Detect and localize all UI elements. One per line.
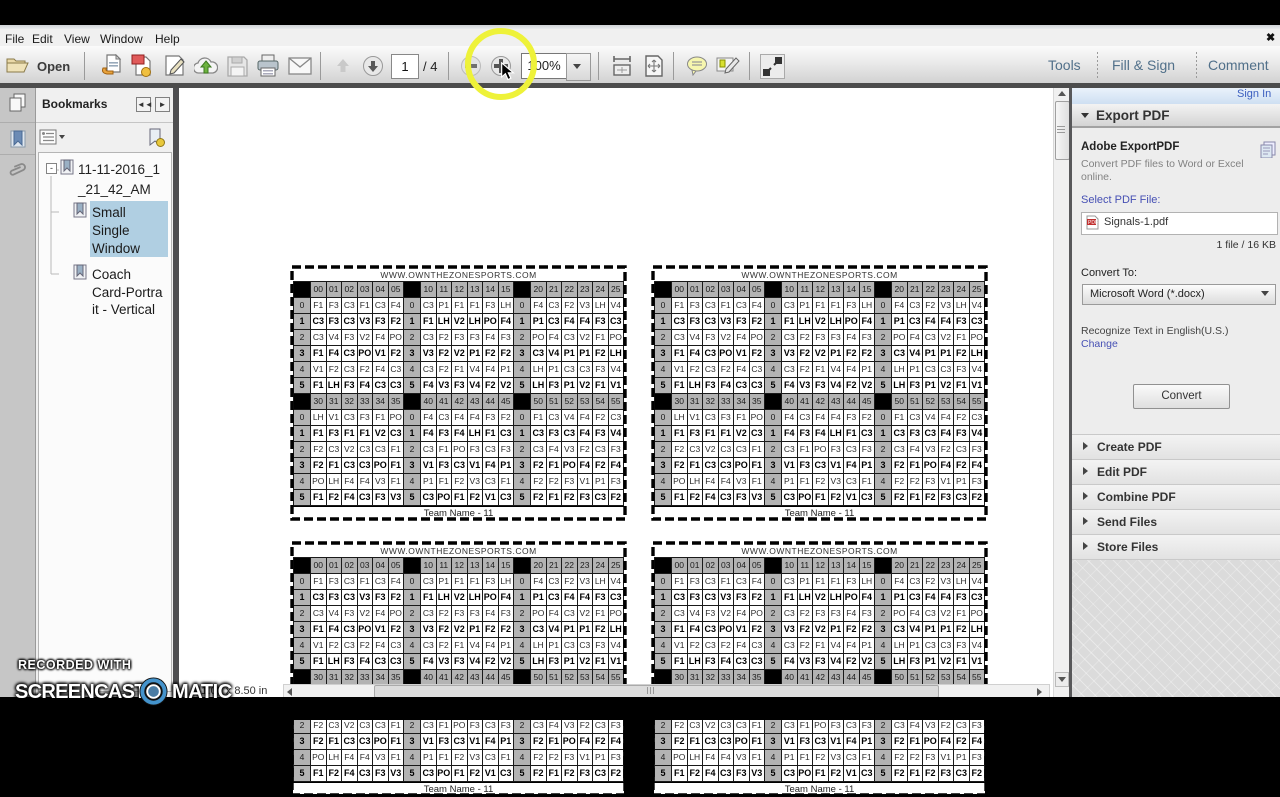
svg-text:PDF: PDF: [1088, 220, 1098, 226]
